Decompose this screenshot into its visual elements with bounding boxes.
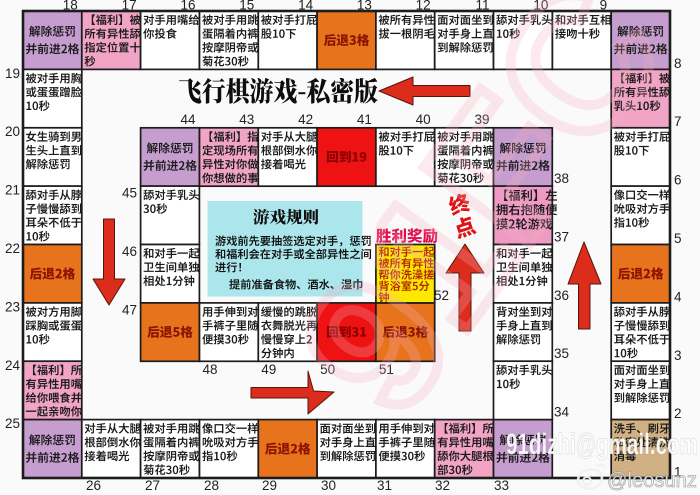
svg-text:43: 43 [239,112,254,127]
svg-text:14: 14 [298,0,314,13]
svg-text:91dizhi@gmail.com: 91dizhi@gmail.com [506,428,698,461]
svg-text:42: 42 [298,112,313,127]
svg-text:48: 48 [203,362,218,377]
svg-text:29: 29 [262,478,277,493]
svg-text:17: 17 [122,0,137,13]
svg-text:44: 44 [180,112,196,127]
svg-text:30: 30 [321,478,336,493]
svg-text:4: 4 [674,289,682,304]
svg-text:3: 3 [674,348,682,363]
svg-text:32: 32 [435,478,450,493]
svg-text:26: 26 [86,478,101,493]
svg-text:41: 41 [357,112,372,127]
svg-text:2: 2 [674,406,682,421]
svg-text:46: 46 [122,244,137,259]
svg-text:28: 28 [204,478,219,493]
svg-text:31: 31 [377,478,392,493]
svg-text:20: 20 [5,124,20,139]
svg-text:5: 5 [674,231,682,246]
svg-text:21: 21 [5,183,20,198]
svg-text:34: 34 [554,405,570,420]
svg-text:16: 16 [180,0,195,13]
svg-text:24: 24 [5,358,21,373]
svg-text:27: 27 [145,478,160,493]
svg-text:36: 36 [554,288,569,303]
svg-text:18: 18 [63,0,78,13]
svg-text:6: 6 [674,173,682,188]
svg-text:45: 45 [122,186,137,201]
svg-text:19: 19 [5,66,20,81]
svg-text:13: 13 [357,0,372,13]
svg-text:33: 33 [494,478,509,493]
svg-text:22: 22 [5,241,20,256]
svg-text:15: 15 [239,0,254,13]
svg-text:7: 7 [674,114,682,129]
svg-text:@leosunz: @leosunz [607,469,697,492]
svg-text:49: 49 [261,362,276,377]
svg-text:25: 25 [5,416,20,431]
svg-text:12: 12 [416,0,431,13]
svg-text:35: 35 [554,346,569,361]
svg-text:47: 47 [122,302,137,317]
svg-text:23: 23 [5,299,20,314]
